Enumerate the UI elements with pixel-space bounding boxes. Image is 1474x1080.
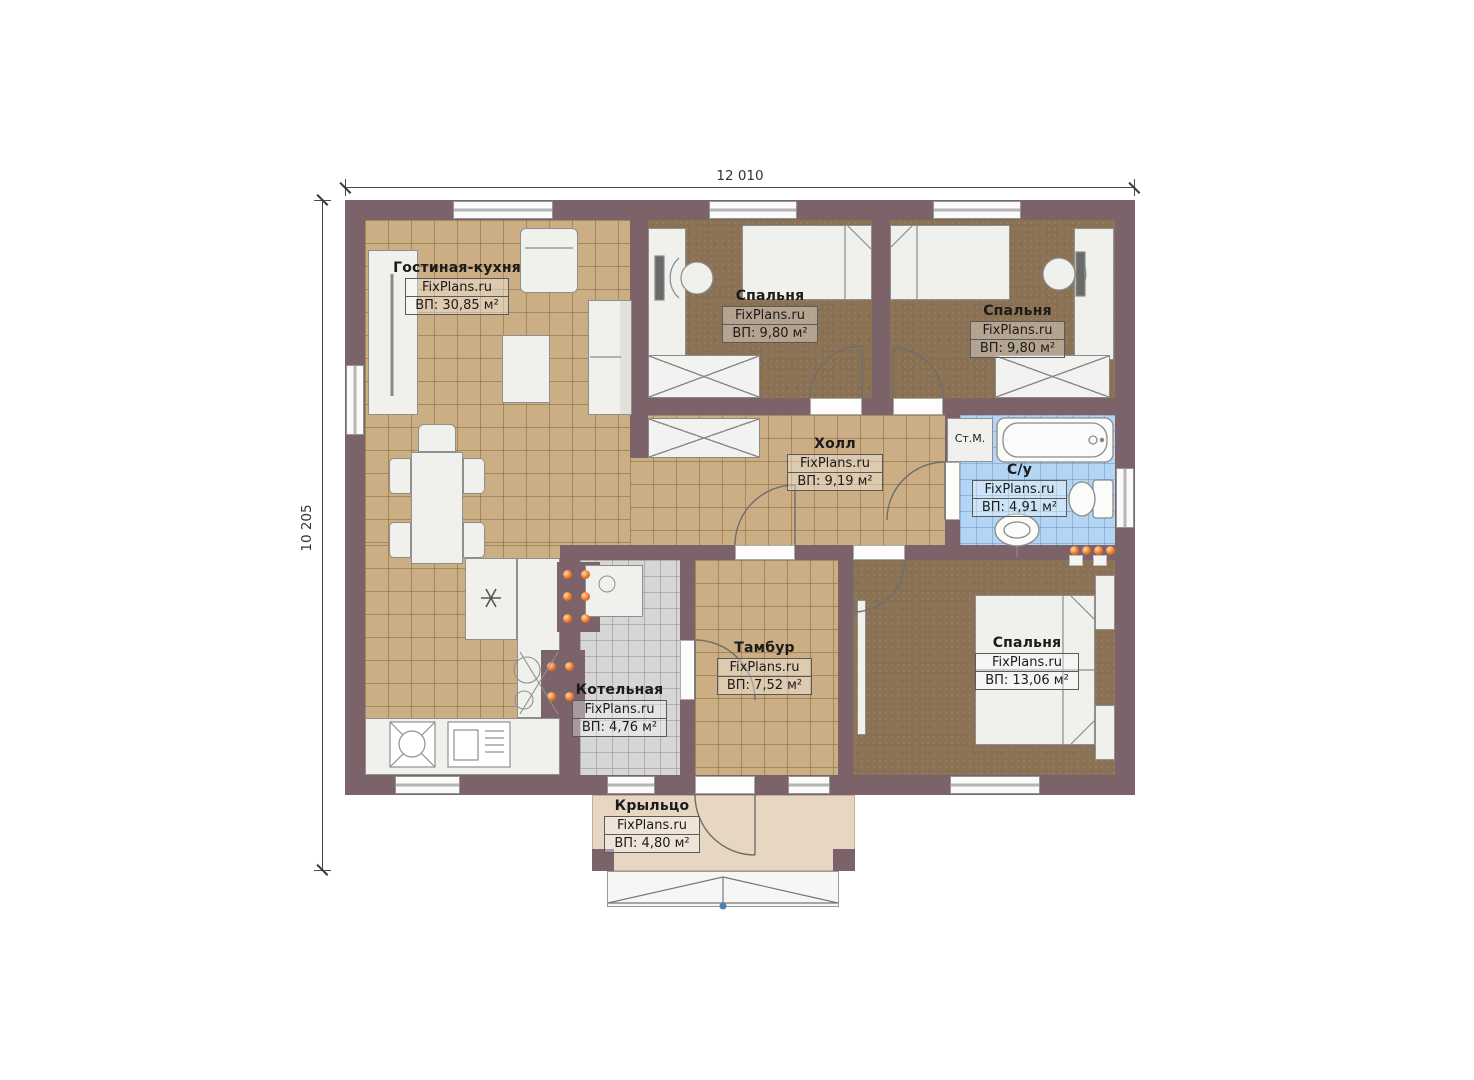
mirror <box>857 600 866 735</box>
left-dimension-line <box>322 200 323 871</box>
radiator-base <box>1093 555 1107 566</box>
room-name: Гостиная-кухня <box>377 260 537 276</box>
room-area: ВП: 4,76 м² <box>573 718 666 736</box>
room-area: ВП: 9,80 м² <box>971 339 1064 357</box>
width-dimension-label: 12 010 <box>645 168 835 184</box>
dining-chair <box>389 522 411 558</box>
radiator-icon <box>1094 546 1103 555</box>
fridge <box>465 558 517 640</box>
kitchen-counter-bottom <box>365 718 560 775</box>
watermark: FixPlans.ru <box>973 481 1066 498</box>
dining-chair <box>463 522 485 558</box>
room-label-living: Гостиная-кухня FixPlans.ru ВП: 30,85 м² <box>377 260 537 315</box>
nightstand <box>1095 705 1115 760</box>
door-opening-bedroom2 <box>893 398 943 415</box>
room-name: Тамбур <box>697 640 832 656</box>
room-area: ВП: 30,85 м² <box>406 296 508 314</box>
wardrobe <box>995 355 1110 398</box>
room-label-tambour: Тамбур FixPlans.ru ВП: 7,52 м² <box>697 640 832 695</box>
door-opening-bedroom3 <box>853 545 905 560</box>
burner-icon <box>581 592 590 601</box>
window-bathroom-right <box>1116 468 1134 528</box>
hall-wardrobe <box>648 418 760 458</box>
room-label-boiler: Котельная FixPlans.ru ВП: 4,76 м² <box>557 682 682 737</box>
watermark: FixPlans.ru <box>406 279 508 296</box>
burner-icon <box>547 692 556 701</box>
desk <box>648 228 686 360</box>
boiler-counter <box>585 565 643 617</box>
porch-pillar-right <box>833 849 855 871</box>
watermark: FixPlans.ru <box>788 455 881 472</box>
burner-icon <box>563 570 572 579</box>
window-tambour-bottom <box>788 776 830 794</box>
room-label-bathroom: С/у FixPlans.ru ВП: 4,91 м² <box>957 462 1082 517</box>
watermark: FixPlans.ru <box>718 659 811 676</box>
window-living-top <box>453 201 553 219</box>
door-opening-hall-tambour <box>735 545 795 560</box>
coffee-table <box>502 335 550 403</box>
burner-icon <box>581 614 590 623</box>
window-bedroom2-top <box>933 201 1021 219</box>
room-area: ВП: 9,80 м² <box>723 324 816 342</box>
room-area: ВП: 13,06 м² <box>976 671 1078 689</box>
burner-icon <box>563 592 572 601</box>
window-bedroom3-bottom <box>950 776 1040 794</box>
dining-table <box>411 452 463 564</box>
room-area: ВП: 7,52 м² <box>718 676 811 694</box>
washing-machine-label: Ст.М. <box>947 432 993 445</box>
burner-icon <box>547 662 556 671</box>
window-living-left <box>346 365 364 435</box>
room-label-porch: Крыльцо FixPlans.ru ВП: 4,80 м² <box>593 798 711 853</box>
dining-chair <box>389 458 411 494</box>
room-name: Котельная <box>557 682 682 698</box>
room-name: Спальня <box>700 288 840 304</box>
room-name: Крыльцо <box>593 798 711 814</box>
dining-chair <box>463 458 485 494</box>
building-outline: Ст.М. <box>345 200 1135 795</box>
room-label-bedroom2: Спальня FixPlans.ru ВП: 9,80 м² <box>950 303 1085 358</box>
window-kitchen-bottom <box>395 776 460 794</box>
burner-icon <box>565 662 574 671</box>
door-opening-boiler <box>680 640 695 700</box>
room-name: С/у <box>957 462 1082 478</box>
top-dimension-line <box>345 187 1135 188</box>
porch-steps <box>607 871 839 907</box>
room-area: ВП: 4,80 м² <box>605 834 698 852</box>
window-boiler-bottom <box>607 776 655 794</box>
room-label-hall: Холл FixPlans.ru ВП: 9,19 м² <box>770 436 900 491</box>
room-name: Спальня <box>957 635 1097 651</box>
wardrobe <box>648 355 760 398</box>
room-label-bedroom1: Спальня FixPlans.ru ВП: 9,80 м² <box>700 288 840 343</box>
watermark: FixPlans.ru <box>573 701 666 718</box>
room-label-bedroom3: Спальня FixPlans.ru ВП: 13,06 м² <box>957 635 1097 690</box>
nightstand <box>1095 575 1115 630</box>
room-name: Спальня <box>950 303 1085 319</box>
dining-chair <box>418 424 456 452</box>
burner-icon <box>563 614 572 623</box>
watermark: FixPlans.ru <box>605 817 698 834</box>
height-dimension-label: 10 205 <box>299 496 315 560</box>
watermark: FixPlans.ru <box>723 307 816 324</box>
front-door-opening <box>695 776 755 794</box>
radiator-icon <box>1070 546 1079 555</box>
burner-icon <box>581 570 590 579</box>
watermark: FixPlans.ru <box>971 322 1064 339</box>
room-name: Холл <box>770 436 900 452</box>
watermark: FixPlans.ru <box>976 654 1078 671</box>
bed-single <box>890 225 1010 300</box>
window-bedroom1-top <box>709 201 797 219</box>
sofa <box>588 300 632 415</box>
radiator-icon <box>1082 546 1091 555</box>
room-area: ВП: 4,91 м² <box>973 498 1066 516</box>
radiator-icon <box>1106 546 1115 555</box>
wall-segment <box>630 415 648 458</box>
door-opening-bedroom1 <box>810 398 862 415</box>
floorplan-canvas: 12 010 10 205 <box>0 0 1474 1080</box>
radiator-base <box>1069 555 1083 566</box>
room-area: ВП: 9,19 м² <box>788 472 881 490</box>
